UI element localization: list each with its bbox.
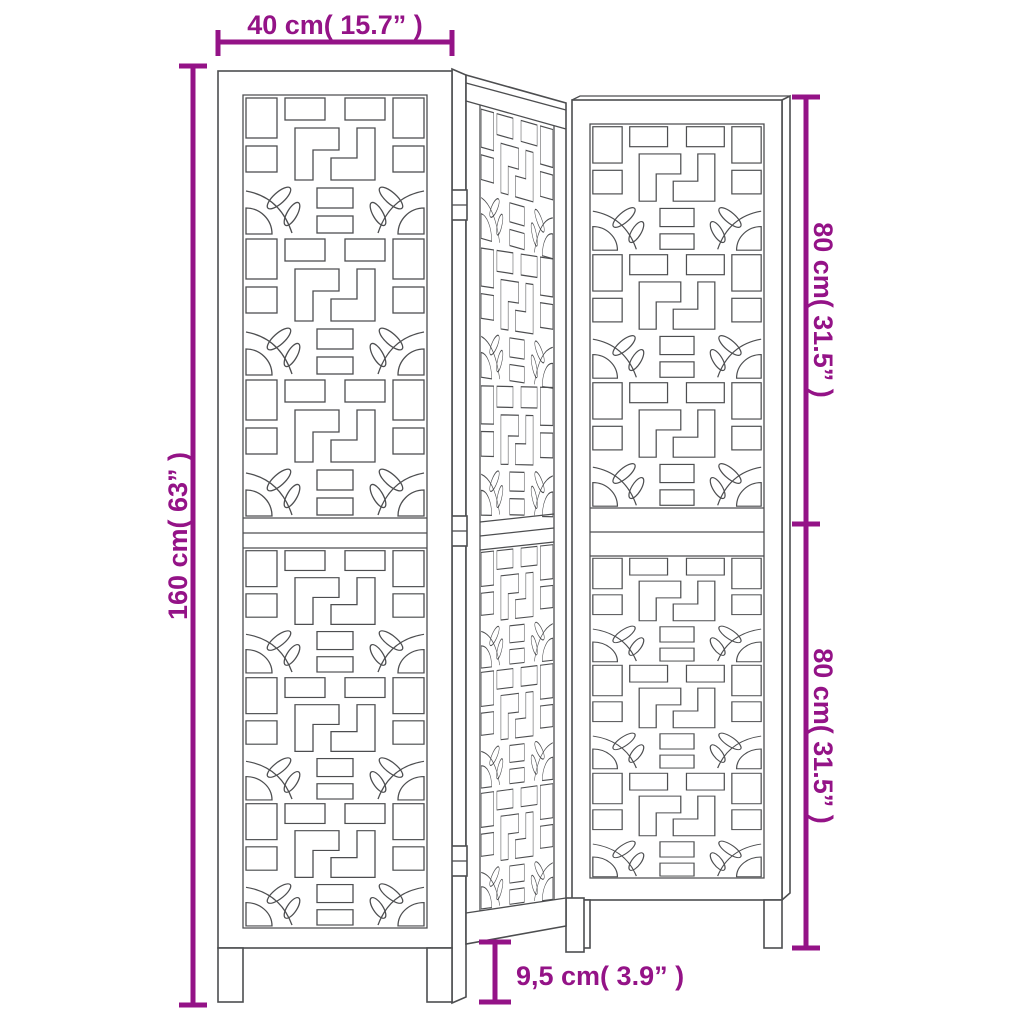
bottom-section-dimension: 80 cm( 31.5” ) [792,524,838,948]
width-dimension-label: 40 cm( 15.7” ) [247,10,423,40]
height-dimension: 160 cm( 63” ) [163,66,207,1005]
diagram-canvas: 40 cm( 15.7” ) 160 cm( 63” ) 80 cm( 31.5… [0,0,1024,1024]
right-panel-side-edge [782,96,790,900]
right-panel-frame [572,100,782,900]
top-section-dimension: 80 cm( 31.5” ) [792,97,838,524]
middle-panel-right-leg [566,898,584,952]
width-dimension: 40 cm( 15.7” ) [218,10,452,56]
leg-height-dimension-label: 9,5 cm( 3.9” ) [516,961,684,991]
bottom-section-dimension-label: 80 cm( 31.5” ) [808,648,838,824]
left-panel-right-leg [427,948,452,1002]
top-section-dimension-label: 80 cm( 31.5” ) [808,222,838,398]
room-divider-diagram: 40 cm( 15.7” ) 160 cm( 63” ) 80 cm( 31.5… [0,0,1024,1024]
height-dimension-label: 160 cm( 63” ) [163,452,193,620]
right-panel-right-leg [764,900,782,948]
left-panel-left-leg [218,948,243,1002]
right-panel [572,96,790,948]
left-panel [218,71,452,1002]
middle-panel [451,69,584,1003]
left-panel-frame [218,71,452,948]
